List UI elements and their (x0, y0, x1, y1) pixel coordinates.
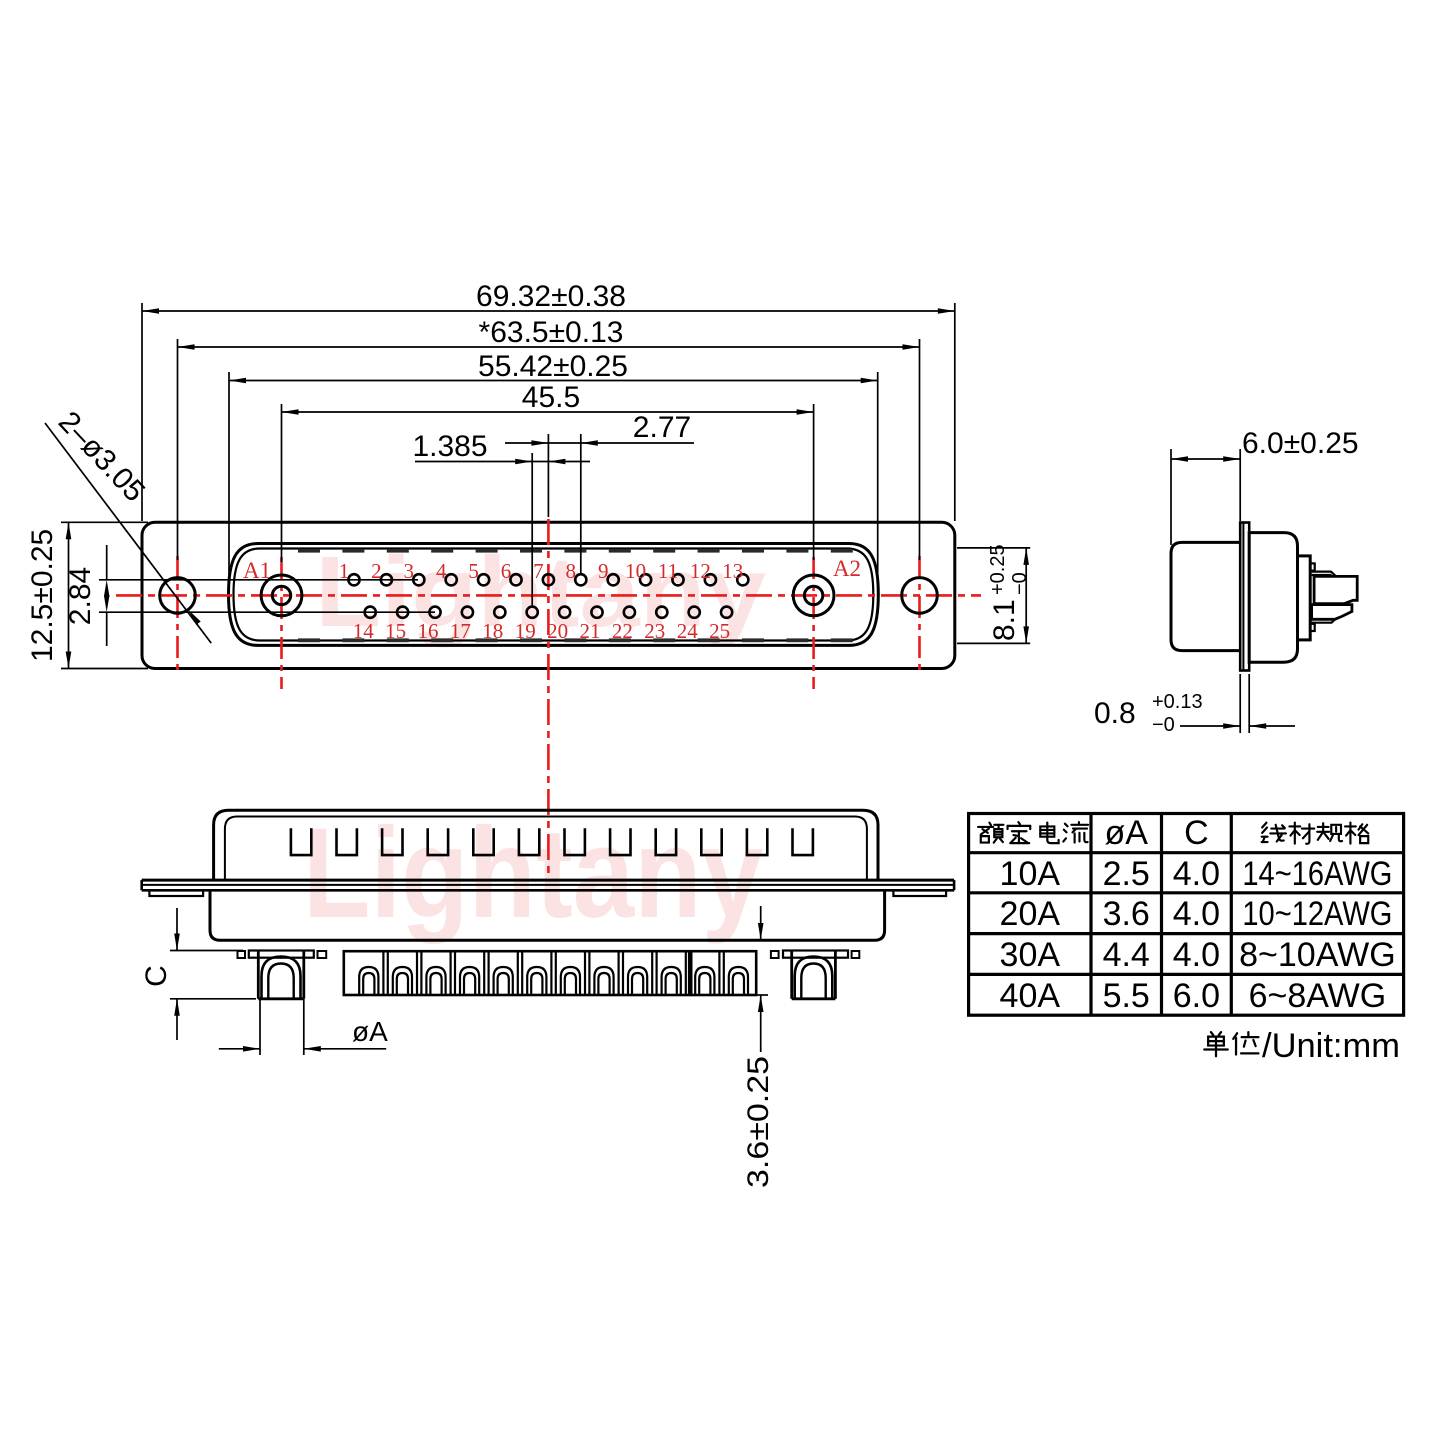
svg-text:0.8: 0.8 (1094, 697, 1136, 730)
svg-text:A2: A2 (833, 556, 861, 581)
svg-text:45.5: 45.5 (522, 381, 580, 414)
svg-text:6.0: 6.0 (1173, 977, 1220, 1015)
svg-text:10~12AWG: 10~12AWG (1242, 895, 1392, 933)
svg-text:/Unit:mm: /Unit:mm (1262, 1027, 1400, 1065)
svg-text:1: 1 (339, 559, 350, 583)
svg-text:11: 11 (658, 559, 678, 583)
svg-text:3: 3 (404, 559, 415, 583)
svg-text:5.5: 5.5 (1103, 977, 1150, 1015)
svg-text:16: 16 (418, 619, 439, 643)
svg-text:3.6±0.25: 3.6±0.25 (742, 1056, 775, 1188)
svg-text:10: 10 (625, 559, 646, 583)
svg-text:2.77: 2.77 (633, 411, 691, 444)
svg-text:20A: 20A (1000, 895, 1061, 933)
svg-text:8: 8 (566, 559, 577, 583)
svg-text:55.42±0.25: 55.42±0.25 (478, 350, 628, 383)
svg-text:−0: −0 (1009, 572, 1031, 595)
svg-text:14: 14 (353, 619, 375, 643)
svg-text:4.4: 4.4 (1103, 936, 1150, 974)
svg-text:13: 13 (722, 559, 743, 583)
svg-text:*63.5±0.13: *63.5±0.13 (479, 316, 624, 349)
svg-text:2.84: 2.84 (64, 567, 97, 625)
svg-text:Lightany: Lightany (315, 536, 766, 648)
svg-text:A1: A1 (243, 558, 271, 583)
svg-text:21: 21 (580, 619, 601, 643)
svg-text:−0: −0 (1152, 714, 1175, 736)
svg-text:4: 4 (436, 559, 447, 583)
svg-text:øA: øA (1104, 814, 1148, 852)
svg-text:4.0: 4.0 (1173, 855, 1220, 893)
svg-text:12: 12 (690, 559, 711, 583)
svg-text:20: 20 (547, 619, 568, 643)
svg-text:7: 7 (533, 559, 544, 583)
svg-text:69.32±0.38: 69.32±0.38 (476, 280, 626, 313)
svg-text:22: 22 (612, 619, 633, 643)
svg-text:40A: 40A (1000, 977, 1061, 1015)
svg-text:C: C (140, 965, 173, 987)
svg-text:2–ø3.05: 2–ø3.05 (52, 405, 151, 508)
svg-text:6~8AWG: 6~8AWG (1249, 977, 1387, 1015)
svg-text:19: 19 (515, 619, 536, 643)
svg-text:øA: øA (352, 1016, 388, 1047)
svg-text:1.385: 1.385 (412, 430, 487, 463)
svg-text:2.5: 2.5 (1103, 855, 1150, 893)
svg-text:9: 9 (598, 559, 609, 583)
svg-text:4.0: 4.0 (1173, 936, 1220, 974)
svg-text:8~10AWG: 8~10AWG (1239, 936, 1396, 974)
svg-text:24: 24 (677, 619, 699, 643)
svg-text:Lightany: Lightany (303, 802, 763, 945)
svg-text:4.0: 4.0 (1173, 895, 1220, 933)
svg-text:3.6: 3.6 (1103, 895, 1150, 933)
svg-text:15: 15 (385, 619, 406, 643)
svg-text:+0.13: +0.13 (1152, 691, 1203, 713)
svg-text:6: 6 (501, 559, 512, 583)
svg-text:+0.25: +0.25 (987, 544, 1009, 595)
svg-text:10A: 10A (1000, 855, 1061, 893)
svg-text:2: 2 (371, 559, 382, 583)
svg-text:23: 23 (644, 619, 665, 643)
svg-text:5: 5 (468, 559, 479, 583)
svg-text:30A: 30A (1000, 936, 1061, 974)
svg-text:6.0±0.25: 6.0±0.25 (1242, 427, 1359, 460)
svg-text:25: 25 (709, 619, 730, 643)
svg-text:12.5±0.25: 12.5±0.25 (26, 529, 59, 662)
svg-text:18: 18 (482, 619, 503, 643)
svg-text:17: 17 (450, 619, 471, 643)
svg-text:C: C (1184, 814, 1209, 852)
svg-text:8.1: 8.1 (988, 599, 1021, 641)
svg-text:14~16AWG: 14~16AWG (1242, 855, 1392, 893)
